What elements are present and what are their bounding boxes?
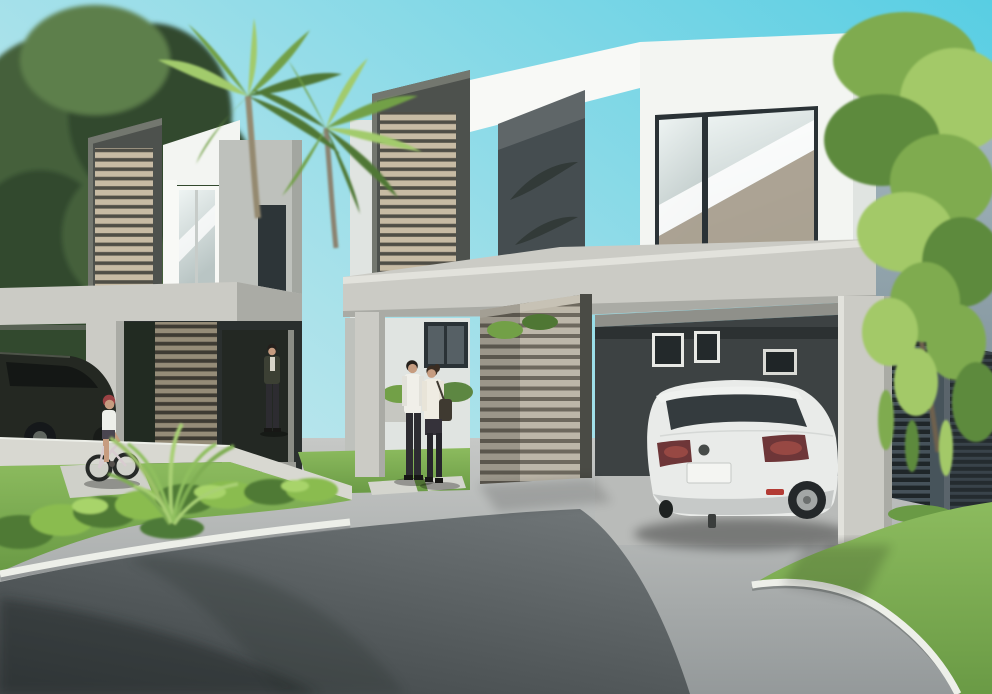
backdrop-window: [424, 322, 468, 368]
person-arm: [422, 381, 427, 411]
suv-reflector: [766, 489, 784, 495]
back-wall-window: [763, 349, 797, 375]
person-shadow: [420, 482, 460, 490]
interior-foliage: [118, 322, 160, 462]
entry-jamb: [288, 330, 294, 465]
louver-frame-edge: [88, 140, 93, 300]
window-divider: [702, 116, 708, 247]
willow-strand: [939, 420, 953, 476]
louver-frame-edge: [372, 96, 377, 302]
person-leg: [273, 384, 279, 428]
person-shoe: [264, 428, 272, 432]
screen-plants: [522, 314, 558, 330]
window-glass: [766, 352, 794, 372]
shrub-highlight: [72, 498, 108, 514]
wall-sliver: [163, 180, 177, 290]
person-face: [268, 348, 276, 356]
person-shoe: [273, 428, 281, 432]
suv-wheel-hidden: [659, 500, 673, 518]
louver-box-left: [88, 118, 162, 302]
handbag: [439, 399, 452, 421]
person-leg: [406, 413, 413, 476]
foliage-blob: [20, 5, 170, 115]
left-house-window: [175, 186, 219, 288]
window-glass: [655, 336, 681, 364]
screen-frame: [580, 294, 592, 478]
window-divider: [195, 190, 198, 284]
willow-strand: [878, 390, 894, 450]
shrub-highlight: [281, 480, 309, 492]
child-face: [105, 400, 115, 410]
suv-taillight-right-glow: [770, 441, 802, 455]
privacy-slat-screen: [480, 294, 592, 484]
person-face: [427, 369, 436, 378]
louver-slats: [380, 112, 456, 278]
person-face: [408, 364, 417, 373]
window-glass: [697, 334, 717, 360]
back-wall-shadow-band: [595, 327, 876, 339]
willow-strand: [905, 420, 919, 472]
person-shirt: [270, 357, 275, 371]
suv-emblem: [699, 445, 710, 456]
big-window: [655, 106, 818, 252]
pillar-bright-edge: [838, 296, 844, 544]
person-arm: [402, 376, 407, 406]
person-hips: [425, 419, 442, 435]
person-leg: [414, 413, 421, 476]
back-wall-window: [694, 331, 720, 363]
person-leg: [427, 433, 433, 477]
person-shoe: [404, 475, 413, 480]
child-shin: [104, 446, 109, 462]
white-suv: [634, 380, 850, 550]
screen-plants: [487, 321, 523, 339]
back-wall-window: [652, 333, 684, 367]
ground-louver-screen: [155, 322, 217, 458]
person-shoe: [414, 475, 423, 480]
window-divider: [444, 326, 447, 364]
person-shoe: [435, 478, 443, 483]
rendering-canvas: [0, 0, 992, 694]
bike-crank: [109, 461, 115, 467]
suv-hitch: [708, 514, 716, 528]
person-shoe: [425, 477, 433, 482]
person-leg: [266, 384, 272, 428]
person-leg: [436, 433, 442, 477]
louver-slats: [95, 148, 153, 288]
suv-plate: [687, 463, 731, 483]
suv-wheel-hub: [803, 496, 811, 504]
suv-taillight-left-glow: [664, 446, 688, 458]
center-pillar-shade: [379, 312, 385, 477]
willow-foliage: [894, 348, 938, 416]
